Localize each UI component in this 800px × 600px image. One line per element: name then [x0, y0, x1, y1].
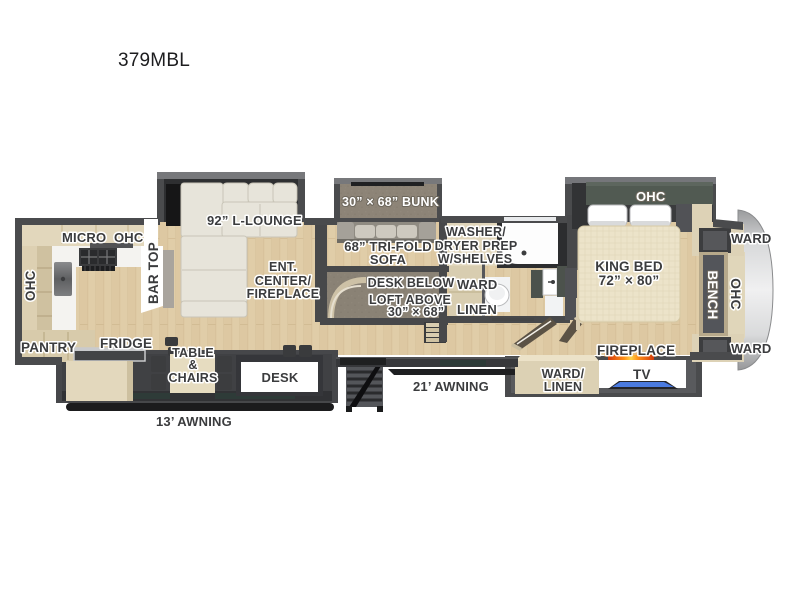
svg-text:379MBL: 379MBL — [118, 50, 190, 71]
svg-text:OHC: OHC — [23, 270, 38, 301]
svg-text:FRIDGE: FRIDGE — [100, 336, 152, 351]
svg-text:72” × 80”: 72” × 80” — [599, 273, 660, 288]
svg-text:KING BED: KING BED — [595, 259, 663, 274]
svg-text:TV: TV — [633, 367, 651, 382]
svg-text:W/SHELVES: W/SHELVES — [438, 252, 513, 266]
svg-text:&: & — [188, 358, 197, 372]
svg-text:WARD: WARD — [457, 277, 498, 292]
svg-text:30” × 68” BUNK: 30” × 68” BUNK — [342, 195, 439, 209]
svg-text:LINEN: LINEN — [544, 380, 583, 394]
svg-text:CENTER/: CENTER/ — [255, 274, 312, 288]
svg-text:21’ AWNING: 21’ AWNING — [413, 379, 489, 394]
svg-text:BAR TOP: BAR TOP — [146, 242, 161, 304]
svg-text:SOFA: SOFA — [370, 252, 407, 267]
svg-text:PANTRY: PANTRY — [21, 340, 76, 355]
svg-text:CHAIRS: CHAIRS — [168, 371, 217, 385]
svg-text:OHC: OHC — [636, 189, 666, 204]
svg-text:DESK: DESK — [262, 370, 299, 385]
svg-text:DESK BELOW: DESK BELOW — [368, 276, 455, 290]
svg-text:FIREPLACE: FIREPLACE — [597, 343, 675, 358]
svg-text:LINEN: LINEN — [457, 302, 497, 317]
svg-text:ENT.: ENT. — [269, 260, 297, 274]
svg-text:92” L-LOUNGE: 92” L-LOUNGE — [207, 213, 302, 228]
svg-text:WARD/: WARD/ — [542, 367, 585, 381]
svg-text:13’ AWNING: 13’ AWNING — [156, 414, 232, 429]
svg-text:DRYER PREP: DRYER PREP — [435, 239, 518, 253]
svg-text:30” × 68”: 30” × 68” — [388, 305, 444, 319]
svg-text:OHC: OHC — [728, 278, 744, 310]
svg-text:WASHER/: WASHER/ — [446, 225, 506, 239]
svg-text:WARD: WARD — [731, 341, 772, 356]
svg-text:BENCH: BENCH — [705, 270, 720, 319]
svg-text:WARD: WARD — [731, 231, 772, 246]
svg-text:FIREPLACE: FIREPLACE — [247, 287, 320, 301]
svg-text:MICRO OHC: MICRO OHC — [62, 230, 144, 245]
